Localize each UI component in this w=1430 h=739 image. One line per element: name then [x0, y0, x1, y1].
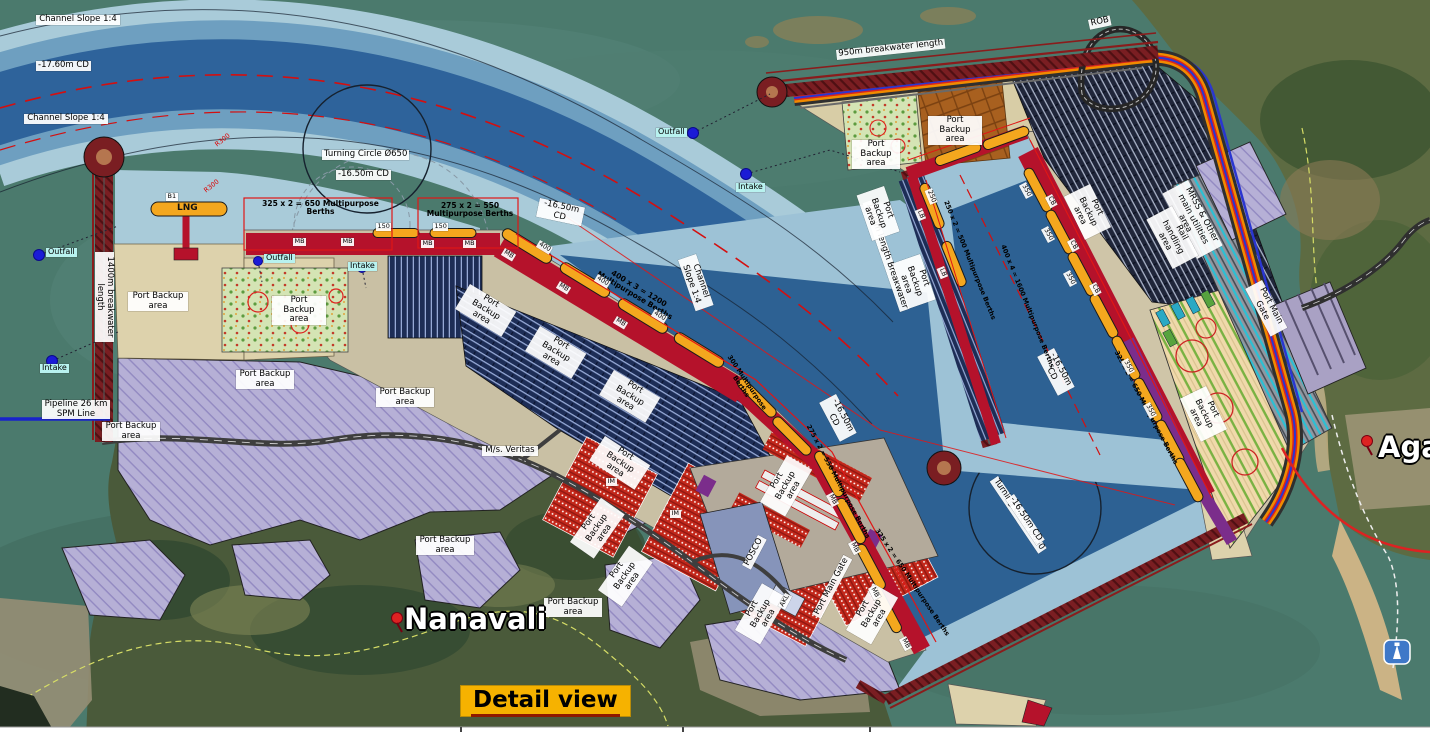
outfall-label: Outfall [264, 254, 295, 263]
port-main-gate-label: Port Main Gate [812, 555, 852, 619]
berth-id-tag: MB [848, 540, 861, 555]
berth-id-tag: MB [421, 240, 434, 248]
berth-id-tag: MB [341, 238, 354, 246]
port-backup-label: Port Backup area [376, 388, 434, 407]
channel-slope-label: Channel Slope 1:4 [36, 15, 120, 25]
im-label: IM [670, 510, 681, 518]
berth-id-tag: MB [899, 636, 912, 651]
veritas-label: M/s. Veritas [482, 446, 538, 456]
lng-berth-label: LNG [177, 203, 198, 213]
port-backup-label: Port Backup area [599, 370, 660, 422]
port-main-gate-label: Port Main Gate [1245, 280, 1287, 337]
village-name-agarwada: Agarwada [1378, 430, 1430, 464]
map-canvas: Channel Slope 1:4 -17.60m CD Channel Slo… [0, 0, 1430, 739]
berth-dimension-label: 325 x 2 = 650 Multipurpose Berths [872, 526, 952, 639]
port-backup-label: Port Backup area [128, 292, 188, 311]
port-backup-label: Port Backup area [1064, 184, 1111, 240]
berth-dimension-label: 325 x 2 = 650 Multipurpose Berths [246, 200, 395, 217]
port-backup-label: Port Backup area [760, 455, 812, 516]
basin-depth-label: -16.50m CD [336, 170, 391, 180]
berth-dimension-label: 275 x 2 = 550 Multipurpose Berths [804, 422, 872, 542]
berth-length-tag: 250 [925, 188, 938, 205]
berth-dimension-label: 300 Multipurpose Berths [714, 346, 773, 424]
berth-id-tag: MB [463, 240, 476, 248]
port-backup-label: Port Backup area [928, 116, 982, 145]
berth-id-tag: MB [826, 492, 839, 507]
outfall-label: Outfall [46, 248, 77, 257]
detail-view-badge: Detail view [460, 685, 631, 717]
berth-id-tag: MB [501, 248, 516, 261]
port-backup-label: Port Backup area [570, 498, 624, 559]
berth-length-tag: 350 [1143, 402, 1157, 419]
berth-dimension-label: 250 x 2 = 500 Multipurpose Berths [941, 198, 997, 323]
port-backup-label: Port Backup area [102, 422, 160, 441]
berth-dimension-label: 400 x 3 = 1200 Multipurpose Berths [583, 256, 689, 329]
port-backup-label: Port Backup area [735, 583, 787, 644]
port-backup-label: Port Backup area [272, 296, 326, 325]
intake-label: Intake [736, 183, 765, 192]
basin-depth-label: -16.50m CD [1006, 494, 1045, 545]
radius-label: R300 [213, 132, 231, 149]
intake-label: Intake [348, 262, 377, 271]
berth-dimension-label: 400 x 4 = 1600 Multipurpose Berths [998, 242, 1056, 371]
berth-id-tag: MB [293, 238, 306, 246]
berth-length-tag: 350 [1041, 226, 1055, 243]
berth-length-tag: 150 [376, 223, 391, 231]
intake-label: Intake [40, 364, 69, 373]
outfall-label: Outfall [656, 128, 687, 137]
port-backup-label: Port Backup area [416, 536, 474, 555]
detail-view-text: Detail view [471, 687, 620, 717]
basin-depth-label: -16.50m CD [536, 198, 585, 226]
port-backup-label: Port Backup area [236, 370, 294, 389]
berth-id-tag: LB [915, 208, 926, 221]
berth-dimension-label: 275 x 2 = 550 Multipurpose Berths [420, 202, 520, 219]
radius-label: R300 [202, 178, 220, 195]
breakwater-length-label: 1400m breakwater length [95, 252, 114, 342]
berth-id-tag: B1 [166, 193, 178, 201]
pipeline-label: Pipeline 26 km SPM Line [42, 400, 110, 419]
breakwater-length-label: 950m breakwater length [836, 39, 946, 60]
village-name-nanavali: Nanavali [404, 602, 546, 636]
basin-depth-label: -16.50m CD [819, 394, 856, 442]
berth-length-tag: 400 [536, 240, 553, 255]
berth-id-tag: LB [937, 266, 948, 279]
port-backup-label: Port Backup area [525, 326, 586, 378]
port-backup-label: Port Backup area [598, 546, 652, 607]
port-backup-label: Port Backup area [544, 598, 602, 617]
channel-depth-label: -17.60m CD [36, 61, 91, 71]
berth-id-tag: MB [613, 316, 628, 329]
im-label: IM [606, 478, 617, 486]
port-backup-label: Port Backup area [1180, 386, 1227, 442]
berth-id-tag: MB [556, 281, 571, 294]
posco-label: POSCO [742, 535, 766, 569]
rob-label: ROB [1088, 15, 1112, 29]
berth-id-tag: CB [1045, 194, 1058, 208]
port-backup-label: Port Backup area [857, 186, 900, 241]
channel-slope-label: Channel Slope 1:4 [678, 254, 714, 311]
berth-length-tag: 150 [433, 223, 448, 231]
berth-id-tag: CB [1067, 238, 1080, 252]
berth-length-tag: 350 [1063, 270, 1077, 287]
port-backup-label: Port Backup area [455, 284, 516, 336]
berth-id-tag: CB [1089, 282, 1102, 296]
berth-length-tag: 350 [1019, 182, 1033, 199]
port-backup-label: Port Backup area [589, 436, 650, 489]
turning-circle-label: Turning Circle Ø650 [322, 150, 409, 160]
annotation-labels: Channel Slope 1:4 -17.60m CD Channel Slo… [0, 0, 1430, 739]
port-backup-label: Port Backup area [852, 140, 900, 169]
channel-slope-label: Channel Slope 1:4 [24, 114, 108, 124]
